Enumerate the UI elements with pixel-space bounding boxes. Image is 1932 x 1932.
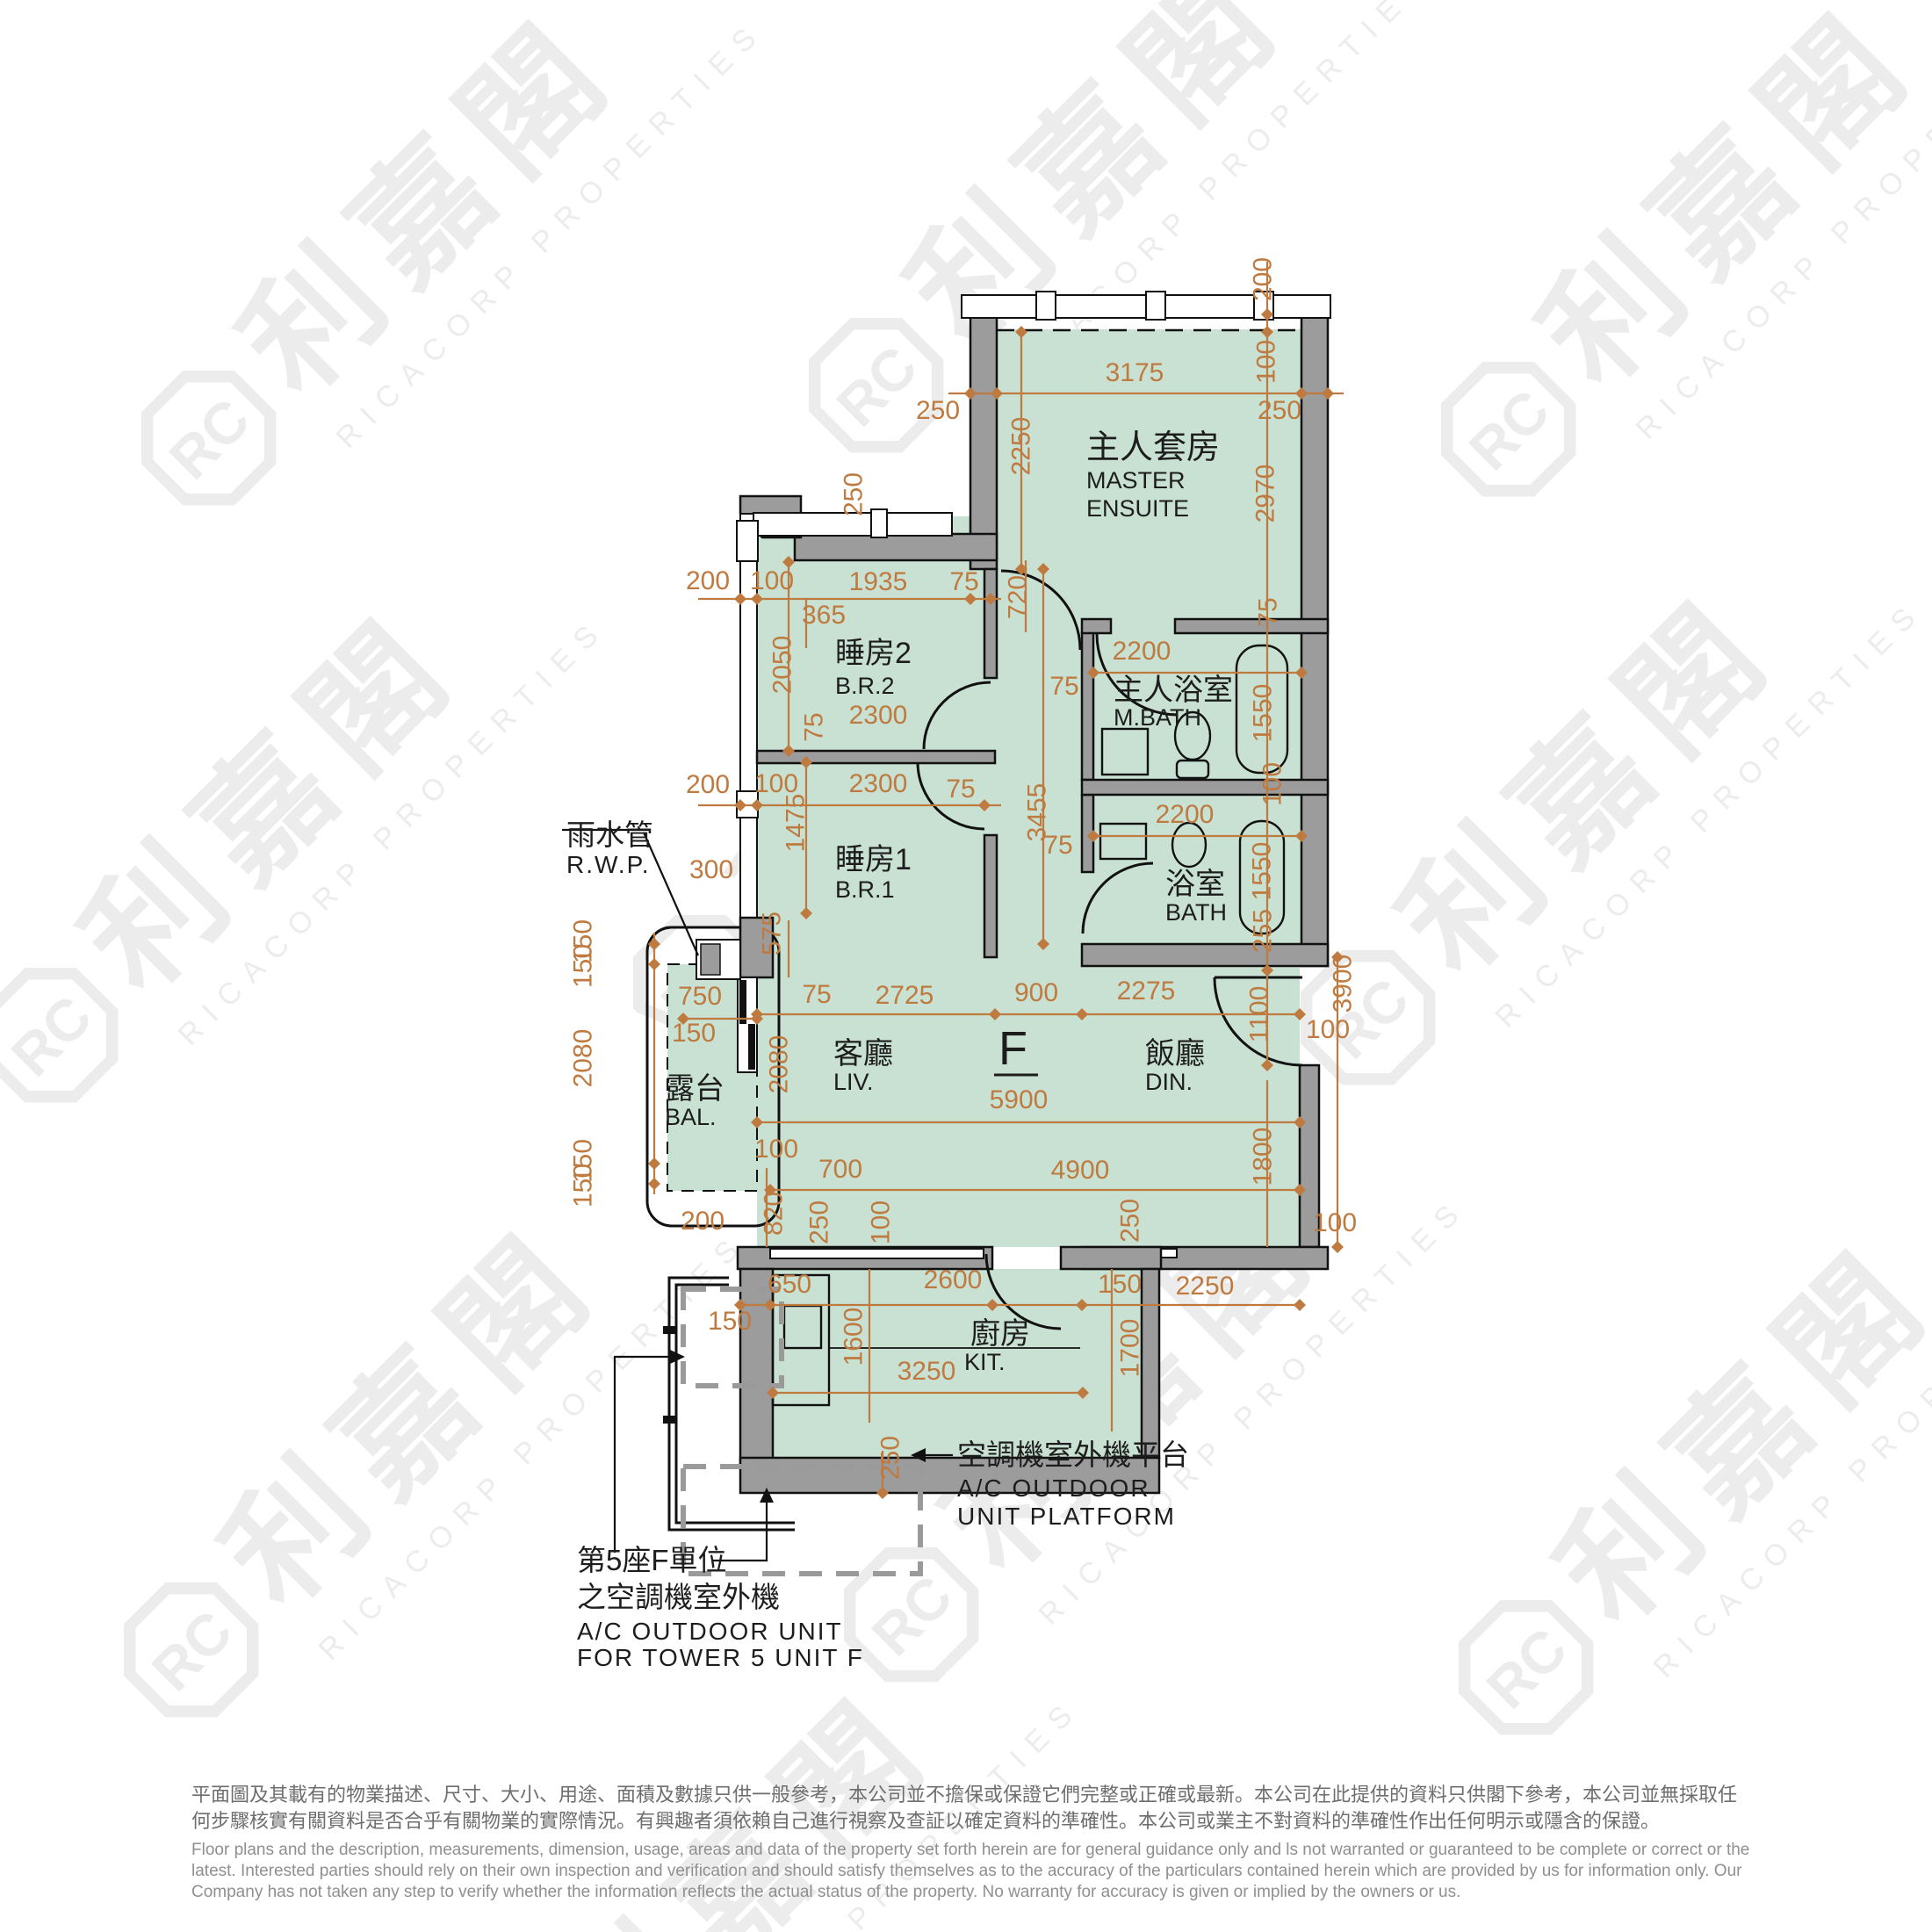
dim-label: 250: [805, 1200, 834, 1244]
dim-label: 200: [1249, 257, 1278, 301]
ac-platform-label-cjk: 空調機室外機平台: [957, 1438, 1189, 1471]
dim-label: 3175: [1106, 358, 1164, 387]
floor-plan-svg: 200 100 250 3175 250 2250 2970 250 200 1…: [0, 0, 1932, 1932]
dim-label: 900: [1014, 978, 1058, 1007]
window-mullion: [1146, 292, 1165, 320]
wall-tick: [663, 1326, 677, 1334]
wall: [1301, 309, 1328, 966]
ac-unit-label-cjk2: 之空調機室外機: [577, 1581, 780, 1613]
disclaimer-zh-line1: 平面圖及其載有的物業描述、尺寸、大小、用途、面積及數據只供一般參考，本公司並不擔…: [191, 1779, 1763, 1807]
sliding-door-panel: [739, 980, 746, 1024]
dim-label: 1475: [782, 794, 811, 853]
window-mullion: [1036, 292, 1056, 320]
dim-label: 365: [802, 601, 846, 630]
dim-label: 100: [750, 566, 794, 595]
dim-label: 2080: [569, 1029, 598, 1088]
dim-label: 150: [672, 1019, 716, 1048]
room-label-bal-en: BAL.: [665, 1104, 717, 1130]
ac-unit-leader-b: [615, 1357, 676, 1553]
dim-label: 75: [1049, 672, 1078, 701]
disclaimer-zh-line2: 何步驟核實有關資料是否合乎有關物業的實際情況。有興趣者須依賴自己進行視察及查証以…: [191, 1806, 1763, 1834]
window-mullion: [871, 509, 887, 537]
dim-label: 820: [760, 1192, 789, 1236]
dim-label: 1600: [840, 1308, 869, 1366]
room-label-kit-cjk: 廚房: [970, 1317, 1030, 1351]
dim-label: 750: [678, 982, 722, 1011]
dim-label: 2050: [768, 636, 797, 695]
room-label-master-en2: ENSUITE: [1086, 495, 1189, 522]
unit-letter: F: [998, 1022, 1027, 1075]
dim-label: 1700: [1116, 1319, 1145, 1378]
dim-label: 2970: [1251, 465, 1280, 523]
room-label-master-cjk: 主人套房: [1086, 429, 1220, 466]
room-label-din-cjk: 飯廳: [1145, 1037, 1205, 1071]
dim-label: 150: [708, 1307, 752, 1336]
dim-label: 150: [569, 944, 598, 988]
dim-label: 1100: [1245, 986, 1274, 1043]
ac-unit-label-en2: FOR TOWER 5 UNIT F: [577, 1644, 864, 1671]
wall: [1082, 780, 1328, 795]
window: [737, 521, 758, 561]
dim-label: 100: [1258, 762, 1287, 806]
room-label-br2-cjk: 睡房2: [835, 637, 912, 670]
room-label-kit-en: KIT.: [964, 1349, 1006, 1375]
dim-label: 250: [840, 472, 869, 516]
dim-label: 250: [916, 396, 960, 425]
dim-label: 2300: [849, 769, 908, 798]
wall: [984, 569, 997, 678]
dim-label: 100: [1306, 1015, 1350, 1044]
wall: [740, 1269, 773, 1468]
dim-label: 4900: [1051, 1156, 1110, 1185]
dim-label: 2725: [876, 981, 934, 1010]
dim-label: 3455: [1023, 783, 1052, 842]
room-label-liv-cjk: 客廳: [833, 1037, 893, 1071]
dim-label: 100: [1313, 1208, 1357, 1237]
dim-label: 1935: [849, 567, 908, 596]
rwp-label-en: R.W.P.: [566, 851, 651, 878]
dim-label: 700: [818, 1155, 862, 1184]
wall: [984, 835, 997, 957]
room-label-br1-en: B.R.1: [835, 876, 895, 903]
dim-label: 2200: [1113, 637, 1171, 666]
dim-label: 250: [876, 1436, 905, 1480]
window: [770, 1249, 984, 1258]
dim-label: 75: [946, 775, 975, 804]
floorplan-page: RC利嘉閣RICACORP PROPERTIES RC利嘉閣RICACORP P…: [0, 0, 1932, 1932]
sliding-door-panel: [748, 1024, 755, 1070]
room-label-din-en: DIN.: [1145, 1069, 1193, 1095]
ac-platform-label-en1: A/C OUTDOOR: [957, 1474, 1150, 1502]
room-label-mbath-en: M.BATH: [1114, 704, 1201, 731]
dim-label: 650: [768, 1270, 811, 1299]
ac-platform-label-en2: UNIT PLATFORM: [957, 1503, 1176, 1530]
dim-label: 100: [867, 1200, 896, 1244]
dim-label: 200: [686, 770, 730, 799]
room-label-liv-en: LIV.: [833, 1069, 874, 1095]
room-label-br1-cjk: 睡房1: [835, 843, 912, 876]
room-label-br2-en: B.R.2: [835, 673, 895, 699]
rwp-pipe-inner: [701, 944, 720, 975]
dim-label: 3900: [1329, 955, 1358, 1013]
wall: [1082, 619, 1111, 633]
dim-label: 2275: [1117, 977, 1176, 1006]
dim-label: 2250: [1176, 1272, 1235, 1301]
dim-label: 1550: [1249, 684, 1278, 743]
dim-label: 200: [686, 566, 730, 595]
dim-label: 200: [681, 1207, 724, 1236]
dim-label: 100: [1252, 340, 1281, 384]
room-label-bath-cjk: 浴室: [1165, 868, 1225, 901]
disclaimer-en-line1: Floor plans and the description, measure…: [191, 1841, 1763, 1860]
dim-label: 2200: [1156, 800, 1215, 829]
dim-label: 2300: [849, 701, 908, 730]
room-area: [997, 944, 1082, 962]
dim-label: 75: [802, 980, 831, 1009]
rwp-label-cjk: 雨水管: [566, 818, 653, 851]
wall: [1061, 1247, 1161, 1269]
ac-unit-label-cjk1: 第5座F單位: [577, 1544, 727, 1576]
dim-label: 250: [1258, 396, 1301, 425]
disclaimer-en-line2: latest. Interested parties should rely o…: [191, 1862, 1763, 1881]
room-label-mbath-cjk: 主人浴室: [1114, 674, 1233, 707]
ac-unit-label-en1: A/C OUTDOOR UNIT: [577, 1618, 843, 1645]
dim-label: 720: [1004, 575, 1033, 619]
dim-label: 75: [949, 567, 978, 596]
dim-label: 255: [1249, 909, 1278, 953]
wall: [1082, 944, 1328, 966]
wall: [970, 309, 997, 569]
dim-label: 2080: [765, 1035, 794, 1094]
dim-label: 1550: [1248, 842, 1277, 901]
dim-label: 300: [689, 855, 733, 884]
dim-label: 3250: [898, 1357, 956, 1386]
wall: [1175, 619, 1328, 633]
dim-label: 575: [758, 912, 787, 955]
dim-label: 100: [754, 1135, 798, 1164]
dim-label: 250: [1116, 1199, 1145, 1243]
dim-label: 1800: [1249, 1128, 1278, 1186]
dim-label: 2600: [924, 1265, 983, 1294]
dim-label: 150: [569, 1164, 598, 1207]
dim-label: 5900: [990, 1085, 1049, 1114]
wall: [795, 534, 997, 560]
dim-label: 2250: [1007, 417, 1036, 476]
room-label-bal-cjk: 露台: [665, 1072, 724, 1106]
disclaimer-en-line3: Company has not taken any step to verify…: [191, 1883, 1763, 1902]
dim-label: 75: [800, 712, 829, 741]
wall: [1082, 632, 1093, 780]
dim-label: 150: [1098, 1270, 1142, 1299]
room-label-bath-en: BATH: [1165, 899, 1227, 926]
wall-tick: [663, 1416, 677, 1424]
dim-label: 75: [1254, 597, 1283, 626]
room-label-master-en1: MASTER: [1086, 467, 1186, 494]
